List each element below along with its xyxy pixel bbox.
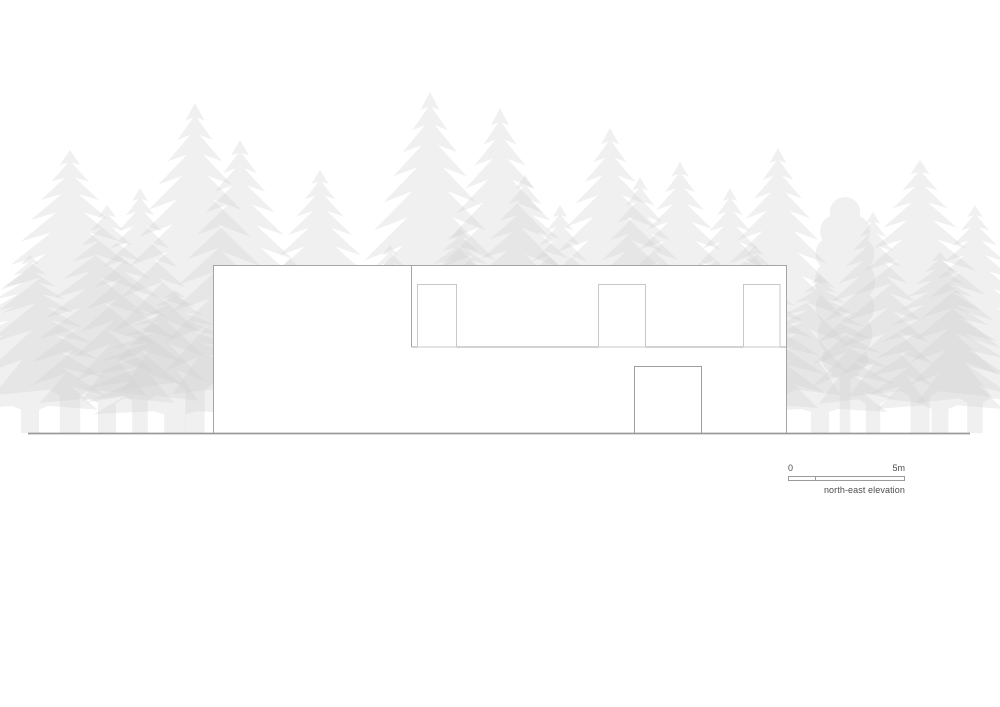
scale-end-label: 5m <box>892 462 905 474</box>
scale-labels: 0 5m <box>788 462 905 474</box>
elevation-drawing: 0 5m north-east elevation <box>0 0 1000 707</box>
drawing-caption: north-east elevation <box>788 485 905 495</box>
window-opening-2 <box>599 285 646 348</box>
window-opening-1 <box>418 285 457 348</box>
scale-bar-tick <box>815 477 816 480</box>
window-opening-3 <box>744 285 781 348</box>
door-opening <box>635 367 702 435</box>
elevation-scene <box>0 0 1000 707</box>
scale-bar <box>788 476 905 481</box>
scale-area: 0 5m north-east elevation <box>788 462 905 495</box>
building <box>214 266 787 435</box>
scale-start-label: 0 <box>788 462 793 474</box>
